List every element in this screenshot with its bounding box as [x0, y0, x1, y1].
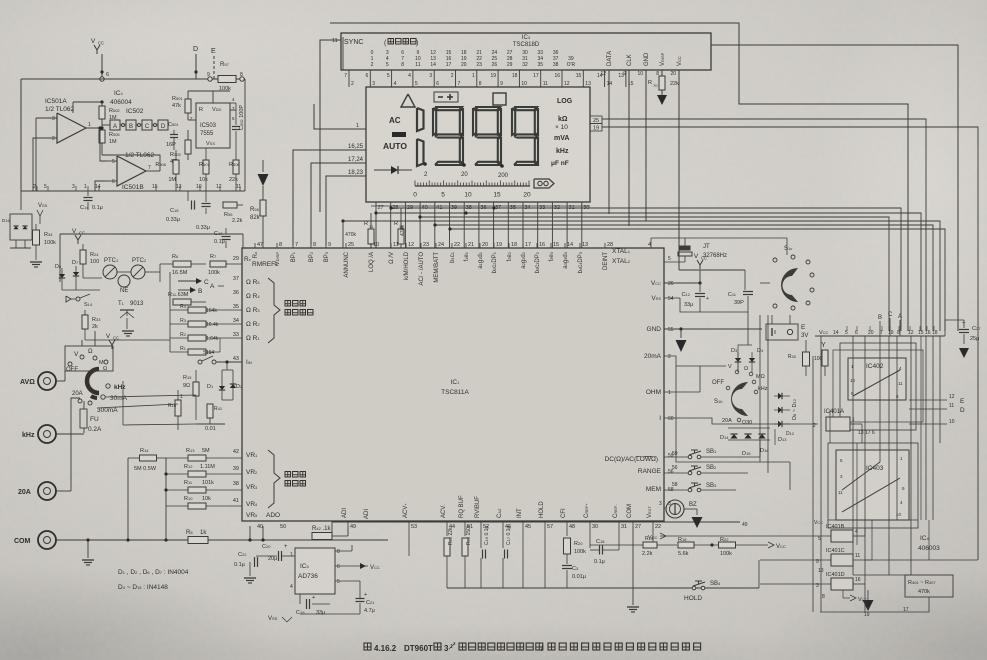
svg-text:27: 27 [635, 524, 641, 530]
svg-text:IC5: IC5 [300, 563, 310, 570]
svg-text:kHz: kHz [556, 148, 569, 155]
svg-text:C: C [888, 312, 893, 318]
svg-text:40: 40 [257, 524, 263, 530]
svg-text:38: 38 [553, 62, 559, 68]
svg-text:30: 30 [592, 524, 598, 530]
svg-text:39: 39 [233, 466, 239, 472]
svg-text:22k: 22k [670, 81, 679, 87]
svg-text:24: 24 [438, 242, 444, 248]
svg-text:25: 25 [348, 242, 354, 248]
svg-text:IC401A: IC401A [824, 409, 844, 415]
svg-text:10: 10 [464, 192, 472, 199]
svg-text:AUTO: AUTO [383, 141, 407, 151]
svg-text:5M: 5M [202, 448, 210, 454]
svg-text:2: 2 [52, 136, 55, 142]
svg-text:O'R: O'R [567, 62, 576, 68]
svg-text:+: + [706, 296, 709, 302]
svg-text:15: 15 [493, 192, 501, 199]
svg-text:35: 35 [538, 62, 544, 68]
svg-text:CLK: CLK [627, 54, 633, 66]
svg-text:3: 3 [659, 501, 662, 507]
svg-text:50: 50 [280, 524, 286, 530]
svg-text:8: 8 [279, 242, 282, 248]
svg-text:25: 25 [593, 118, 599, 124]
svg-text:20mA: 20mA [644, 353, 662, 360]
svg-text:406004: 406004 [110, 99, 132, 106]
svg-text:Y: Y [821, 342, 826, 349]
svg-text:17: 17 [533, 73, 539, 79]
svg-text:100k: 100k [574, 549, 586, 555]
svg-text:A: A [210, 283, 215, 290]
svg-text:5: 5 [337, 579, 340, 585]
svg-text:0.1μ: 0.1μ [594, 559, 605, 565]
svg-text:LOG: LOG [557, 98, 573, 105]
svg-text:19: 19 [496, 242, 502, 248]
svg-text:15: 15 [152, 184, 158, 190]
svg-text:12: 12 [908, 330, 914, 336]
svg-text:BZ: BZ [689, 502, 697, 508]
svg-text:15: 15 [576, 73, 582, 79]
svg-text:Ω R4: Ω R4 [246, 293, 260, 300]
svg-text:RMREFL: RMREFL [252, 261, 279, 268]
svg-text:10k: 10k [199, 177, 208, 183]
svg-text:39P: 39P [734, 300, 744, 306]
svg-text:GND: GND [644, 52, 650, 66]
svg-text:15: 15 [918, 330, 924, 336]
svg-text:CC: CC [113, 336, 119, 341]
svg-text:20A: 20A [72, 391, 83, 397]
svg-text:18: 18 [932, 330, 938, 336]
svg-text:41: 41 [233, 498, 239, 504]
svg-text:3: 3 [52, 116, 55, 122]
svg-text:8: 8 [313, 242, 316, 248]
svg-text:11: 11 [415, 62, 420, 68]
svg-text:ADI: ADI [342, 508, 348, 518]
svg-text:C17 0.1μ: C17 0.1μ [506, 526, 512, 545]
svg-text:Ω R5: Ω R5 [246, 279, 260, 286]
svg-text:20: 20 [482, 242, 488, 248]
svg-text:COM: COM [14, 538, 31, 545]
svg-text:6: 6 [112, 179, 115, 185]
svg-text:V: V [74, 351, 79, 358]
svg-text:VR1: VR1 [246, 452, 258, 459]
svg-text:20: 20 [461, 172, 468, 178]
svg-text:TSC818D: TSC818D [513, 42, 540, 48]
svg-text:20: 20 [461, 62, 467, 68]
svg-text:2: 2 [668, 354, 671, 360]
svg-text:R26 150k: R26 150k [466, 524, 472, 545]
svg-text:6: 6 [436, 81, 439, 87]
svg-text:30mA: 30mA [110, 395, 128, 402]
svg-text:3: 3 [372, 81, 375, 87]
svg-text:33μ: 33μ [684, 302, 693, 308]
svg-text:B: B [129, 124, 133, 130]
svg-text:HOLD: HOLD [684, 595, 702, 602]
svg-text:b3c3DP2: b3c3DP2 [535, 251, 541, 273]
svg-text:ACV-: ACV- [441, 504, 447, 518]
svg-text:CC: CC [79, 231, 85, 236]
svg-text:1.11M: 1.11M [200, 464, 215, 470]
svg-text:0: 0 [413, 192, 417, 199]
svg-text:VR4: VR4 [246, 501, 258, 508]
svg-text:14: 14 [567, 242, 573, 248]
svg-text:V: V [694, 253, 699, 260]
svg-text:12: 12 [408, 242, 414, 248]
svg-text:19: 19 [593, 126, 599, 132]
svg-text:R11.63M: R11.63M [168, 292, 189, 298]
svg-text:54: 54 [668, 296, 674, 302]
svg-text:164k: 164k [206, 308, 217, 314]
svg-text:ADI: ADI [364, 509, 370, 519]
svg-text:2k: 2k [92, 324, 98, 330]
svg-text:1: 1 [852, 417, 855, 423]
svg-text:MEM/BATT: MEM/BATT [434, 252, 440, 283]
svg-text:C: C [204, 279, 209, 286]
svg-text:42: 42 [233, 449, 239, 455]
svg-text:18,23: 18,23 [348, 170, 364, 176]
svg-text:19: 19 [491, 73, 497, 79]
svg-text:6: 6 [366, 73, 369, 79]
svg-text:RQ BUF: RQ BUF [459, 495, 465, 518]
svg-text:8: 8 [479, 81, 482, 87]
svg-text:SYNC: SYNC [344, 39, 363, 46]
svg-text:25μ: 25μ [970, 336, 979, 342]
svg-text:2.2k: 2.2k [232, 218, 243, 224]
svg-text:k/M/HOLD: k/M/HOLD [404, 251, 410, 280]
svg-text:34: 34 [233, 318, 239, 324]
svg-text:C: C [145, 124, 150, 130]
svg-text:2: 2 [813, 423, 816, 429]
svg-text:23: 23 [423, 242, 429, 248]
svg-text:8: 8 [822, 594, 825, 600]
svg-text:17: 17 [525, 242, 531, 248]
svg-text:7555: 7555 [200, 131, 214, 137]
svg-text:10: 10 [373, 242, 379, 248]
svg-text:13: 13 [582, 242, 588, 248]
svg-text:5: 5 [818, 536, 821, 542]
svg-text:6: 6 [337, 564, 340, 570]
svg-text:1: 1 [668, 390, 671, 396]
svg-text:INT: INT [517, 508, 523, 518]
svg-text:20: 20 [523, 192, 531, 199]
svg-text:47: 47 [257, 242, 263, 248]
svg-text:× 10: × 10 [555, 124, 568, 131]
svg-text:19: 19 [864, 612, 870, 618]
svg-text:100k: 100k [44, 240, 56, 246]
svg-text:Ω /V: Ω /V [389, 252, 395, 264]
svg-text:11: 11 [236, 184, 241, 190]
svg-text:LOQ /A: LOQ /A [369, 252, 375, 272]
svg-text:20: 20 [868, 330, 874, 336]
svg-text:2: 2 [371, 62, 374, 68]
svg-text:56: 56 [672, 465, 678, 471]
svg-text:0.33μ: 0.33μ [196, 225, 210, 231]
svg-text:VSS: VSS [651, 295, 661, 302]
svg-text:HOLD: HOLD [539, 501, 545, 518]
svg-text:7: 7 [148, 165, 151, 171]
svg-text:43: 43 [233, 356, 239, 362]
svg-text:A: A [898, 314, 902, 320]
svg-text:7: 7 [344, 73, 347, 79]
svg-text:7: 7 [458, 81, 461, 87]
svg-text:5: 5 [415, 81, 418, 87]
svg-text:B: B [878, 315, 882, 321]
svg-text:11: 11 [838, 490, 843, 495]
svg-text:4: 4 [855, 529, 858, 535]
svg-text:D: D [161, 124, 166, 130]
svg-text:Ω: Ω [88, 349, 93, 355]
svg-text:22: 22 [454, 242, 460, 248]
svg-text:100: 100 [90, 259, 99, 265]
svg-text:1/2 TL062: 1/2 TL062 [125, 152, 155, 159]
svg-text:XTAL1: XTAL1 [612, 248, 631, 255]
svg-text:20μ: 20μ [268, 556, 277, 562]
svg-text:JT: JT [703, 244, 710, 250]
svg-text:16.5M: 16.5M [172, 270, 188, 276]
svg-text:Ω30: Ω30 [742, 420, 752, 426]
svg-text:11: 11 [393, 242, 399, 248]
svg-text:470k: 470k [400, 225, 406, 236]
svg-text:0.1μ: 0.1μ [234, 562, 245, 568]
svg-text:4.7μ: 4.7μ [364, 608, 375, 614]
svg-text:23: 23 [476, 62, 482, 68]
svg-text:47k: 47k [172, 103, 181, 109]
svg-text:17: 17 [446, 62, 452, 68]
svg-text:100k: 100k [208, 270, 220, 276]
svg-text:V: V [728, 364, 732, 370]
svg-text:V: V [106, 333, 111, 340]
svg-text:0.01: 0.01 [205, 426, 216, 432]
svg-text:OHM: OHM [646, 389, 661, 396]
svg-text:20A: 20A [18, 489, 31, 496]
svg-text:22k: 22k [229, 177, 238, 183]
svg-text:4: 4 [394, 81, 397, 87]
svg-text:3: 3 [72, 184, 75, 190]
svg-text:19: 19 [888, 330, 894, 336]
svg-text:12: 12 [216, 184, 222, 190]
svg-text:V: V [72, 228, 77, 235]
svg-text:5: 5 [668, 256, 671, 262]
svg-text:48: 48 [569, 524, 575, 530]
svg-text:Ω R2: Ω R2 [246, 321, 260, 328]
svg-text:R: R [648, 80, 652, 86]
svg-text:ANNUNC: ANNUNC [344, 251, 350, 277]
svg-text:IC401C: IC401C [826, 548, 845, 554]
svg-text:AC: AC [389, 116, 401, 125]
svg-text:14: 14 [95, 184, 101, 190]
svg-text:IC501A: IC501A [45, 98, 67, 105]
svg-text:5M 0.5W: 5M 0.5W [134, 466, 157, 472]
svg-text:10: 10 [196, 184, 202, 190]
svg-text:R: R [394, 221, 398, 227]
svg-text:16: 16 [554, 73, 560, 79]
svg-text:R: R [199, 107, 203, 113]
svg-text:16: 16 [539, 242, 545, 248]
svg-text:16.4k: 16.4k [206, 322, 219, 328]
svg-text:2: 2 [33, 184, 36, 190]
svg-text:59: 59 [672, 451, 678, 457]
svg-text:10: 10 [521, 81, 527, 87]
svg-text:18: 18 [512, 73, 518, 79]
svg-text:IC1: IC1 [451, 379, 461, 386]
svg-text:1: 1 [472, 73, 475, 79]
svg-text:0.2A: 0.2A [88, 426, 102, 433]
svg-text:33μ: 33μ [316, 610, 325, 616]
svg-text:1/2 TL062: 1/2 TL062 [45, 106, 75, 113]
svg-text:0.1μ: 0.1μ [92, 205, 103, 211]
svg-text:29: 29 [233, 256, 239, 262]
svg-text:70: 70 [653, 83, 658, 88]
svg-text:): ) [416, 40, 418, 47]
svg-text:31: 31 [621, 524, 627, 530]
svg-text:9013: 9013 [130, 301, 144, 307]
svg-text:D: D [193, 46, 198, 53]
svg-text:1: 1 [290, 552, 293, 558]
svg-text:MEM: MEM [646, 486, 661, 493]
svg-text:IC4: IC4 [920, 535, 930, 542]
svg-text:5: 5 [441, 192, 445, 199]
svg-text:Ω: Ω [744, 366, 748, 372]
svg-text:13: 13 [176, 184, 182, 190]
svg-text:470k: 470k [918, 589, 930, 595]
svg-text:9: 9 [623, 71, 626, 77]
svg-text:29: 29 [507, 62, 513, 68]
svg-text:57: 57 [547, 524, 553, 530]
svg-text:IIN: IIN [246, 359, 252, 366]
svg-text:10: 10 [637, 71, 643, 77]
svg-text:5: 5 [845, 330, 848, 336]
svg-text:33: 33 [233, 332, 239, 338]
svg-text:53: 53 [411, 524, 417, 530]
svg-text:Rx: Rx [244, 256, 251, 263]
svg-text:kΩ: kΩ [558, 116, 568, 123]
svg-text:2: 2 [451, 73, 454, 79]
svg-text:IC401B: IC401B [826, 524, 845, 530]
svg-text:5: 5 [44, 184, 47, 190]
svg-text:16,25: 16,25 [348, 144, 364, 150]
svg-text:R25 22k: R25 22k [448, 527, 454, 545]
svg-text:D1 , D2 , D6 , D7 : IN4004: D1 , D2 , D6 , D7 : IN4004 [118, 569, 189, 576]
svg-text:4.16.2: 4.16.2 [374, 644, 397, 653]
svg-text:DT960T: DT960T [404, 644, 433, 653]
svg-text:VR5: VR5 [246, 512, 258, 519]
svg-text:IC501B: IC501B [122, 184, 144, 191]
svg-text:3: 3 [816, 583, 819, 589]
svg-text:32: 32 [522, 62, 528, 68]
svg-text:10: 10 [949, 419, 955, 425]
svg-text:IC503: IC503 [200, 123, 217, 129]
svg-text:VR3: VR3 [246, 484, 258, 491]
svg-text:36: 36 [233, 290, 239, 296]
svg-text:12: 12 [949, 394, 955, 400]
svg-text:DC(Ω)/AC(LOWΩ): DC(Ω)/AC(LOWΩ) [605, 456, 658, 463]
svg-text:NE: NE [120, 288, 128, 294]
svg-text:IC401D: IC401D [826, 572, 845, 578]
svg-text:C502 100P: C502 100P [239, 105, 245, 130]
svg-text:1M: 1M [109, 139, 117, 145]
svg-text:20A: 20A [722, 418, 732, 424]
svg-text:5: 5 [387, 73, 390, 79]
svg-text:COM: COM [627, 504, 633, 518]
svg-text:17,24: 17,24 [348, 157, 364, 163]
svg-text:B: B [198, 288, 202, 295]
svg-text:1: 1 [84, 184, 87, 190]
svg-text:12: 12 [564, 81, 570, 87]
svg-text:3V: 3V [801, 333, 808, 339]
svg-text:16P: 16P [166, 142, 176, 148]
svg-text:9: 9 [500, 81, 503, 87]
svg-text:CC: CC [701, 256, 707, 261]
svg-text:16: 16 [855, 577, 861, 583]
svg-text:E: E [801, 324, 806, 331]
svg-text:58: 58 [672, 482, 678, 488]
svg-text:1: 1 [88, 122, 91, 128]
svg-text:IC502: IC502 [126, 108, 144, 115]
svg-text:8: 8 [897, 330, 900, 336]
svg-text:200: 200 [498, 173, 509, 179]
svg-text:18: 18 [511, 242, 517, 248]
svg-text:1k: 1k [200, 530, 207, 536]
svg-text:11: 11 [898, 381, 903, 386]
svg-text:6: 6 [855, 330, 858, 336]
svg-text:12: 12 [600, 71, 606, 77]
svg-text:+: + [364, 592, 367, 598]
svg-text:7: 7 [295, 242, 298, 248]
svg-text:4: 4 [408, 73, 411, 79]
svg-text:9Ω: 9Ω [183, 383, 190, 389]
svg-text:AD736: AD736 [298, 573, 318, 580]
svg-text:μF nF: μF nF [551, 160, 569, 167]
svg-text:20: 20 [670, 71, 676, 77]
svg-text:Ω R1: Ω R1 [246, 335, 260, 342]
svg-text:b4c4DP3: b4c4DP3 [578, 251, 584, 273]
svg-text:TSC811A: TSC811A [441, 389, 469, 396]
svg-text:21: 21 [468, 242, 474, 248]
svg-text:5: 5 [112, 159, 115, 165]
svg-text:45: 45 [525, 524, 531, 530]
svg-text:49: 49 [742, 522, 748, 528]
svg-text:3: 3 [429, 73, 432, 79]
svg-text:ADO: ADO [266, 512, 280, 519]
svg-text:22: 22 [655, 524, 661, 530]
svg-text:I: I [659, 415, 661, 422]
svg-text:RANGE: RANGE [638, 468, 662, 475]
svg-text:6: 6 [106, 72, 109, 78]
svg-text:14: 14 [430, 62, 436, 68]
svg-text:8: 8 [337, 549, 340, 555]
svg-text:DEINT: DEINT [603, 252, 609, 270]
svg-text:XTAL2: XTAL2 [612, 258, 631, 265]
svg-text:3: 3 [444, 644, 449, 653]
svg-text:60: 60 [668, 416, 674, 422]
svg-text:2: 2 [351, 81, 354, 87]
svg-text:0.01μ: 0.01μ [572, 574, 586, 580]
svg-text:DATA: DATA [607, 51, 613, 66]
svg-text:AC/ - /AUTO: AC/ - /AUTO [419, 252, 425, 286]
svg-text:kHz: kHz [114, 384, 126, 391]
svg-text:CC: CC [98, 41, 104, 46]
svg-text:1,64k: 1,64k [206, 336, 219, 342]
svg-text:A: A [113, 124, 117, 130]
svg-text:11: 11 [949, 403, 954, 409]
svg-text:7: 7 [880, 330, 883, 336]
svg-text:26: 26 [492, 62, 498, 68]
svg-text:E: E [211, 48, 216, 55]
svg-text:100k: 100k [720, 551, 732, 557]
svg-text:RVIBUF: RVIBUF [475, 496, 481, 518]
svg-text:37: 37 [233, 276, 239, 282]
svg-text:IC402: IC402 [866, 363, 884, 370]
